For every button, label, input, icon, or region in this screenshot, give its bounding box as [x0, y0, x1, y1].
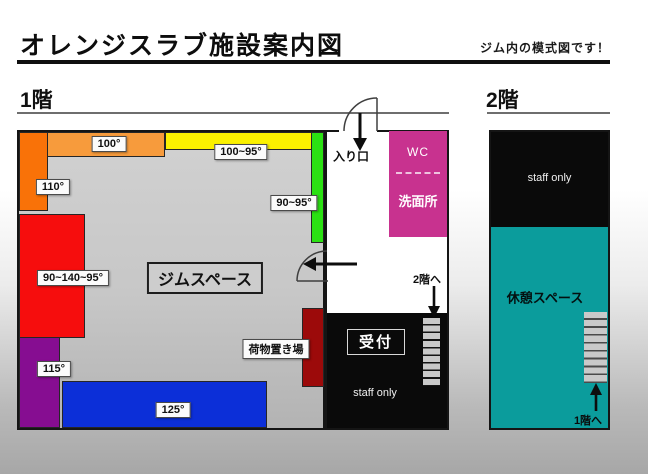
to-floor2-label: 2階へ — [413, 271, 441, 287]
wall-110deg — [19, 132, 48, 211]
label-90-95deg: 90~95° — [270, 195, 317, 211]
to-floor1-label: 1階へ — [574, 412, 602, 428]
floor1-staff-only-label: staff only — [327, 387, 423, 399]
washroom-label: 洗面所 — [389, 191, 447, 210]
page-subtitle: ジム内の模式図です！ — [468, 39, 610, 56]
label-90-140-95deg: 90~140~95° — [37, 270, 109, 286]
label-125deg: 125° — [156, 402, 191, 418]
entrance-door-swing-icon — [344, 98, 377, 131]
rest-space-label: 休憩スペース — [507, 288, 583, 307]
storage-label: 荷物置き場 — [243, 339, 310, 359]
floor1-stairs — [423, 318, 440, 386]
floor1-underline — [17, 112, 449, 114]
floor1-plan: 100° 110° 100~95° 90~95° 90~140~95° 115°… — [17, 130, 449, 430]
entrance-label: 入り口 — [333, 148, 369, 165]
wc-label: WC — [389, 145, 447, 159]
page-title: オレンジスラブ施設案内図 — [20, 26, 344, 62]
floor2-staff-only-label: staff only — [491, 172, 608, 184]
wall-115deg — [19, 337, 60, 428]
floor1-heading: 1階 — [20, 84, 53, 114]
wc-washroom-block: WC 洗面所 — [389, 131, 447, 237]
floor2-heading: 2階 — [486, 84, 519, 114]
floor2-underline — [487, 112, 610, 114]
entrance-door-opening — [339, 130, 377, 133]
title-underline — [17, 60, 610, 64]
reception-label: 受付 — [347, 329, 405, 355]
label-100deg: 100° — [92, 136, 127, 152]
facility-map-slide: オレンジスラブ施設案内図 ジム内の模式図です！ 1階 2階 100° 110° … — [0, 0, 648, 474]
label-115deg: 115° — [37, 361, 71, 377]
wall-90-95deg — [311, 132, 324, 243]
floor2-plan: staff only 休憩スペース 1階へ — [489, 130, 610, 430]
wc-divider — [396, 172, 440, 174]
gym-space-label: ジムスペース — [147, 262, 263, 294]
floor2-stairs — [584, 312, 607, 383]
label-100-95deg: 100~95° — [214, 144, 267, 160]
label-110deg: 110° — [36, 179, 70, 195]
